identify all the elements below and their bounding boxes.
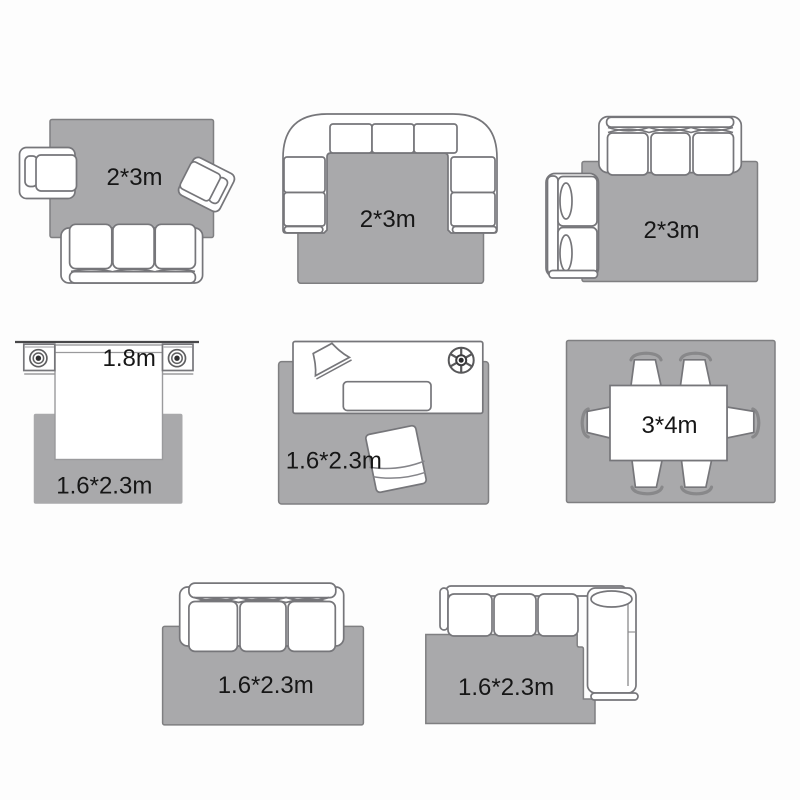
- svg-text:2*3m: 2*3m: [644, 217, 700, 244]
- svg-text:2*3m: 2*3m: [107, 164, 163, 191]
- svg-text:1.6*2.3m: 1.6*2.3m: [218, 672, 314, 699]
- svg-text:1.6*2.3m: 1.6*2.3m: [56, 473, 152, 500]
- svg-text:2*3m: 2*3m: [360, 206, 416, 233]
- svg-text:1.6*2.3m: 1.6*2.3m: [286, 448, 382, 475]
- svg-text:1.6*2.3m: 1.6*2.3m: [458, 674, 554, 701]
- svg-text:3*4m: 3*4m: [642, 412, 698, 439]
- svg-text:1.8m: 1.8m: [103, 345, 156, 372]
